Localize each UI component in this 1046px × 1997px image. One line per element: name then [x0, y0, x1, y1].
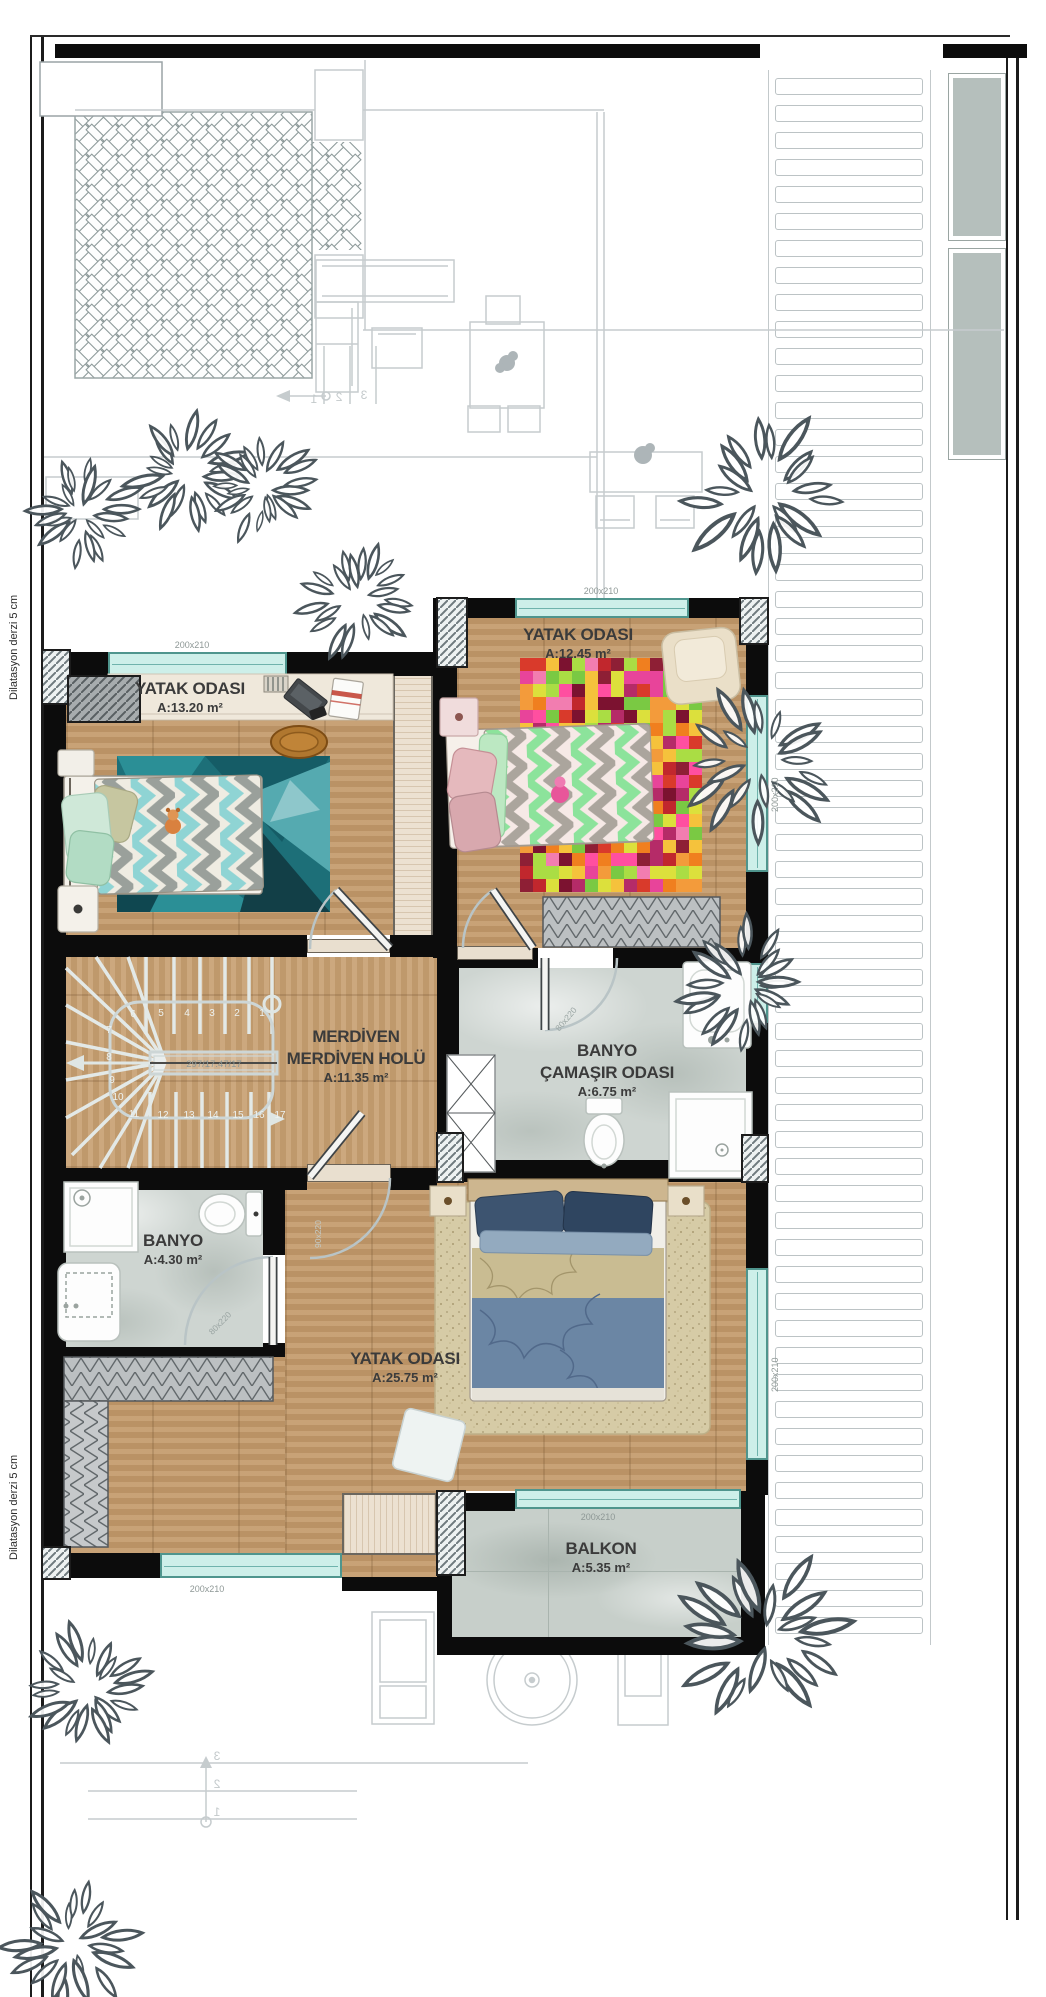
label-balcony: BALKON A:5.35 m²: [566, 1538, 637, 1577]
window-dim: 200x210: [175, 640, 210, 650]
door-bedroom2: [463, 890, 533, 948]
svg-text:8: 8: [106, 1052, 112, 1063]
svg-text:6: 6: [130, 1009, 136, 1020]
floor-plan: 123321: [0, 0, 1046, 1997]
svg-text:7: 7: [106, 1025, 112, 1036]
label-laundry: BANYO ÇAMAŞIR ODASI A:6.75 m²: [540, 1040, 674, 1101]
room-area: A:13.20 m²: [135, 700, 245, 717]
label-bedroom2: YATAK ODASI A:12.45 m²: [523, 624, 633, 663]
door-laundry: [545, 958, 617, 1030]
toilet: [199, 1194, 245, 1234]
svg-text:14: 14: [207, 1110, 219, 1121]
svg-text:15: 15: [232, 1110, 244, 1121]
window-dim: 200x210: [770, 1357, 780, 1392]
staircase: 297/17.47/17 1234567891011121314151617: [66, 957, 286, 1168]
vanity: [58, 1263, 120, 1341]
bed-bedroom1: [61, 775, 264, 894]
window-dim: 200x210: [584, 586, 619, 596]
stair-dimension-label: 297/17.47/17: [186, 1059, 241, 1070]
wardrobe-strip-h: [64, 1357, 273, 1401]
label-bedroom1: YATAK ODASI A:13.20 m²: [135, 678, 245, 717]
window-dim: 200x210: [581, 1512, 616, 1522]
svg-text:17: 17: [274, 1110, 286, 1121]
svg-text:16: 16: [253, 1110, 265, 1121]
svg-text:11: 11: [129, 1109, 140, 1120]
window-dim: 200x210: [770, 777, 780, 812]
room-name: YATAK ODASI: [135, 678, 245, 700]
shower-tray: [669, 1092, 752, 1178]
svg-text:4: 4: [184, 1008, 190, 1019]
detail-layer: 297/17.47/17 1234567891011121314151617: [0, 0, 1046, 1997]
svg-text:5: 5: [158, 1008, 164, 1019]
svg-text:2: 2: [234, 1008, 240, 1019]
window-dim: 200x210: [190, 1584, 225, 1594]
toilet: [584, 1114, 624, 1166]
svg-text:12: 12: [157, 1110, 169, 1121]
shower-tray: [64, 1182, 138, 1252]
svg-text:9: 9: [109, 1075, 115, 1086]
door-bathroom: [185, 1257, 273, 1345]
svg-text:3: 3: [209, 1008, 215, 1019]
label-bathroom: BANYO A:4.30 m²: [143, 1230, 203, 1269]
bed-bedroom2: [446, 724, 654, 854]
svg-text:13: 13: [183, 1110, 195, 1121]
svg-text:10: 10: [112, 1092, 124, 1103]
dilatation-note-bottom: Dilatasyon derzi 5 cm: [8, 1455, 20, 1560]
svg-text:1: 1: [259, 1008, 265, 1019]
bed-master: [468, 1179, 668, 1401]
door-dim: 90x220: [313, 1220, 323, 1248]
dilatation-note-top: Dilatasyon derzi 5 cm: [8, 595, 20, 700]
armchair-bedroom2: [661, 626, 742, 705]
wardrobe-strip-v: [64, 1401, 108, 1547]
notebook: [329, 678, 364, 720]
bench-bedroom2: [543, 897, 720, 947]
label-master: YATAK ODASI A:25.75 m²: [350, 1348, 460, 1387]
label-stairs: MERDİVEN MERDİVEN HOLÜ A:11.35 m²: [287, 1026, 426, 1087]
